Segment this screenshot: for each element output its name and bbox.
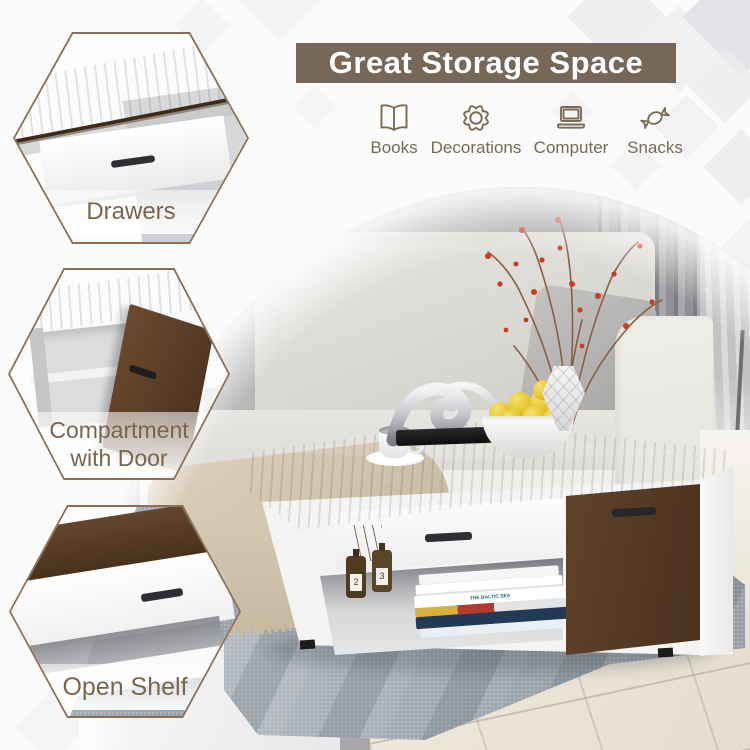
- door-handle: [129, 364, 157, 380]
- callout-drawers: Drawers: [13, 32, 249, 244]
- bg-diamond: [294, 86, 336, 128]
- product-infographic: THE BALTIC SEA 2 3: [0, 0, 750, 750]
- laptop-icon: [554, 101, 588, 135]
- flower-icon: [459, 101, 493, 135]
- storage-item-label: Snacks: [607, 138, 703, 158]
- bottle-neck: [353, 549, 359, 557]
- table-foot: [300, 639, 316, 649]
- storage-item-decorations: Decorations: [428, 101, 524, 158]
- storage-item-label: Computer: [523, 138, 619, 158]
- callout-label: Compartment with Door: [44, 416, 194, 472]
- bottle-neck: [379, 543, 385, 551]
- table-side-panel: [700, 466, 733, 656]
- callout-label: Open Shelf: [62, 673, 187, 702]
- storage-item-label: Decorations: [428, 138, 524, 158]
- bottle: 2: [346, 556, 366, 598]
- candy-icon: [638, 101, 672, 135]
- book-spine-text: THE BALTIC SEA: [469, 592, 510, 602]
- bottle-label: 3: [376, 568, 388, 585]
- title-banner: Great Storage Space: [296, 43, 676, 83]
- callout-drawers-photo: Drawers: [15, 34, 247, 242]
- storage-item-snacks: Snacks: [607, 101, 703, 158]
- bottle: 3: [372, 550, 392, 592]
- open-book-icon: [376, 101, 412, 135]
- callout-label: Drawers: [86, 198, 175, 226]
- bg-diamond: [238, 0, 320, 42]
- storage-item-computer: Computer: [523, 101, 619, 158]
- callout-label-band: Drawers: [15, 190, 247, 234]
- page-title: Great Storage Space: [329, 45, 643, 81]
- bottle-label: 2: [350, 574, 362, 591]
- book-stack: THE BALTIC SEA: [413, 565, 570, 649]
- bg-diamond: [703, 129, 750, 205]
- table-foot: [658, 648, 673, 658]
